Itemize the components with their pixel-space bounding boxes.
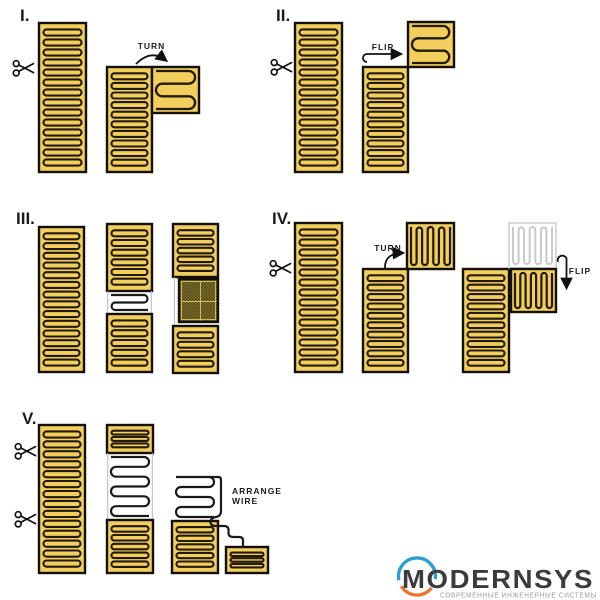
turn-label: TURN: [374, 243, 402, 253]
section-i-numeral: I.: [20, 6, 29, 25]
section-i-graphics: [13, 23, 199, 172]
section-iv-graphics: [270, 223, 566, 372]
arrange-wire-label-line2: WIRE: [232, 496, 258, 506]
heating-film-cutting-instructions: I. TURN II. FLIP III. IV. TURN FLIP V. A…: [0, 0, 600, 600]
heating-mat-film: [107, 520, 153, 573]
arrow: [558, 256, 567, 287]
heating-mat-film: [407, 223, 454, 269]
turn-label: TURN: [138, 41, 166, 51]
heating-mat-film: [152, 67, 199, 113]
modernsys-logo: MODERNSYS СОВРЕМЕННЫЕ ИНЖЕНЕРНЫЕ СИСТЕМЫ: [386, 554, 600, 600]
section-ii-numeral: II.: [276, 6, 290, 25]
section-ii-graphics: [271, 22, 454, 172]
arrange-wire-label-line1: ARRANGE: [232, 486, 282, 496]
heating-mat-film: [107, 425, 153, 453]
arrow: [363, 54, 400, 62]
scissors-icon: [270, 261, 290, 276]
heating-mat-film: [226, 547, 268, 573]
section-ii: II. FLIP: [271, 6, 454, 172]
scissors-icon: [15, 444, 35, 459]
section-iii: III.: [16, 209, 218, 373]
heating-mat-film: [173, 224, 218, 277]
flip-label: FLIP: [569, 266, 591, 276]
section-v: V. ARRANGE WIRE: [15, 409, 282, 573]
section-iv-numeral: IV.: [272, 209, 291, 228]
scissors-icon: [13, 61, 33, 76]
heating-mat-film: [511, 269, 556, 312]
exposed-wire: [176, 477, 214, 517]
heating-mat-film: [172, 521, 218, 573]
arrow: [385, 253, 402, 268]
section-v-numeral: V.: [22, 409, 37, 428]
section-iii-graphics: [39, 224, 218, 373]
section-iii-numeral: III.: [16, 209, 35, 228]
exposed-wire: [111, 457, 149, 516]
arrow: [136, 55, 166, 64]
heating-mat-film: [107, 314, 152, 372]
scissors-icon: [15, 512, 35, 527]
hatch-covered-square: [179, 279, 218, 322]
section-v-graphics: [15, 425, 268, 573]
section-iv: IV. TURN FLIP: [270, 209, 591, 372]
instructions-diagram: I. TURN II. FLIP III. IV. TURN FLIP V. A…: [0, 0, 600, 600]
heating-mat-film: [107, 224, 152, 291]
flip-label: FLIP: [372, 42, 394, 52]
ghost-square-outline: [509, 223, 556, 268]
scissors-icon: [271, 60, 291, 75]
logo-tagline-text: СОВРЕМЕННЫЕ ИНЖЕНЕРНЫЕ СИСТЕМЫ: [440, 591, 597, 600]
exposed-wire: [111, 295, 148, 310]
section-i: I. TURN: [13, 6, 199, 172]
logo-brand-text: MODERNSYS: [402, 564, 594, 594]
